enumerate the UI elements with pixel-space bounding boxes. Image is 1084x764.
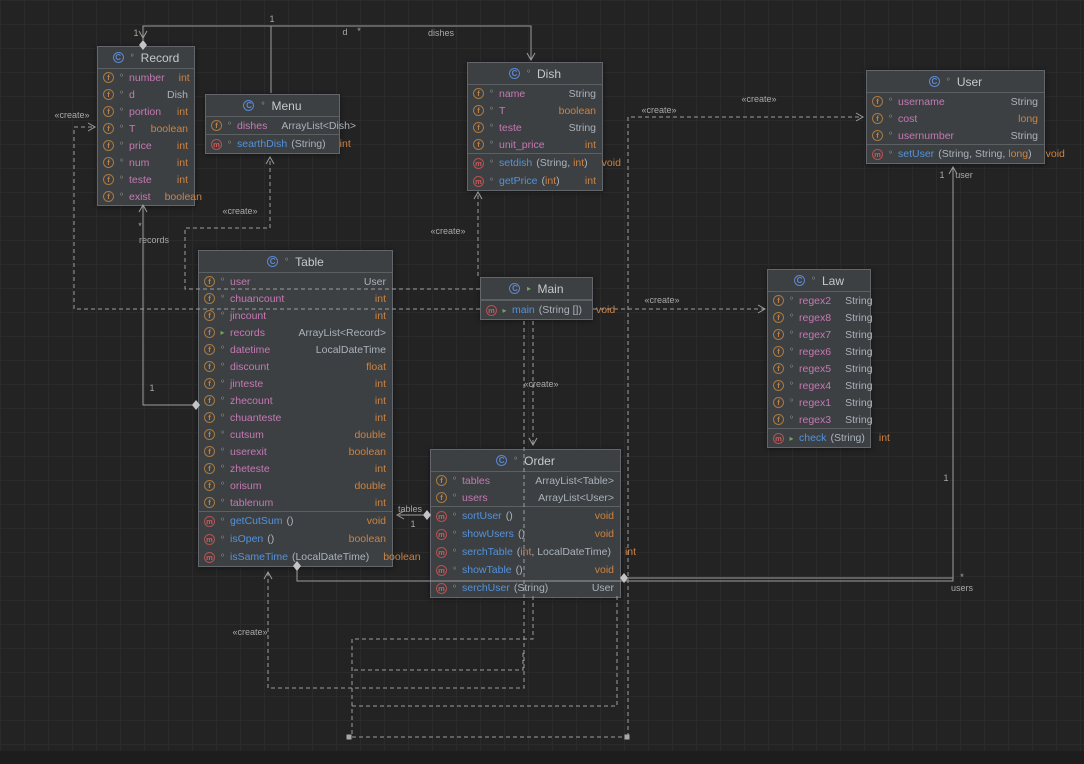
method-row[interactable]: mºsetUser(String, String, long)void	[867, 145, 1044, 163]
visibility-icon: º	[219, 414, 226, 421]
field-name: teste	[499, 122, 522, 134]
field-row[interactable]: fºjintesteint	[199, 375, 392, 392]
class-title: User	[957, 75, 982, 89]
member-type: String	[835, 312, 872, 324]
class-icon: C	[794, 275, 805, 286]
field-row[interactable]: fºTboolean	[98, 120, 194, 137]
class-header-main[interactable]: C▸Main	[481, 278, 592, 300]
method-icon: m	[436, 547, 447, 558]
field-icon: f	[211, 120, 222, 131]
field-row[interactable]: fºjincountint	[199, 307, 392, 324]
class-title: Main	[537, 282, 563, 296]
class-title: Order	[524, 454, 555, 468]
member-type: ArrayList<User>	[528, 492, 614, 504]
member-type: void	[585, 528, 614, 540]
field-row[interactable]: fºtesteString	[468, 119, 602, 136]
field-icon: f	[103, 157, 114, 168]
methods-section: mºgetCutSum()voidmºisOpen()booleanmºisSa…	[199, 511, 392, 566]
method-row[interactable]: mºshowTable()void	[431, 561, 620, 579]
field-row[interactable]: fºuserexitboolean	[199, 443, 392, 460]
method-row[interactable]: mºsetdish(String, int)void	[468, 154, 602, 172]
viewport-edge	[0, 751, 1084, 764]
field-name: number	[129, 72, 165, 84]
member-type: int	[167, 157, 188, 169]
method-icon: m	[872, 149, 883, 160]
field-row[interactable]: fºunit_priceint	[468, 136, 602, 153]
member-type: String []	[542, 304, 578, 316]
member-type: LocalDateTime	[537, 546, 607, 558]
class-title: Table	[295, 255, 324, 269]
member-type: boolean	[141, 123, 188, 135]
class-header-order[interactable]: CºOrder	[431, 450, 620, 472]
method-icon: m	[211, 139, 222, 150]
visibility-icon: º	[219, 482, 226, 489]
member-type: String	[835, 295, 872, 307]
field-icon: f	[773, 414, 784, 425]
fields-section: fºtablesArrayList<Table>fºusersArrayList…	[431, 472, 620, 506]
field-name: num	[129, 157, 149, 169]
member-type: String	[835, 397, 872, 409]
method-row[interactable]: m▸check(String)int	[768, 429, 870, 447]
class-icon: C	[509, 283, 520, 294]
field-icon: f	[773, 397, 784, 408]
method-params: (String)	[830, 432, 864, 444]
visibility-icon: º	[219, 499, 226, 506]
visibility-icon: º	[788, 348, 795, 355]
field-row[interactable]: fºregex8String	[768, 309, 870, 326]
method-params: ()	[516, 564, 523, 576]
field-row[interactable]: fºdishesArrayList<Dish>	[206, 117, 339, 134]
member-type: int	[365, 293, 386, 305]
field-name: unit_price	[499, 139, 545, 151]
field-name: regex8	[799, 312, 831, 324]
method-name: showUsers	[462, 528, 514, 540]
visibility-icon: º	[118, 125, 125, 132]
field-icon: f	[773, 346, 784, 357]
method-params: (LocalDateTime)	[292, 551, 369, 563]
class-icon: C	[243, 100, 254, 111]
member-type: boolean	[339, 533, 386, 545]
field-icon: f	[204, 463, 215, 474]
visibility-icon: º	[788, 365, 795, 372]
field-icon: f	[204, 395, 215, 406]
field-row[interactable]: f▸recordsArrayList<Record>	[199, 324, 392, 341]
method-params: (int, LocalDateTime)	[517, 546, 611, 558]
field-icon: f	[204, 429, 215, 440]
field-name: regex2	[799, 295, 831, 307]
field-name: zheteste	[230, 463, 270, 475]
member-type: void	[585, 510, 614, 522]
field-name: regex5	[799, 363, 831, 375]
visibility-icon: º	[118, 193, 125, 200]
field-icon: f	[473, 105, 484, 116]
field-name: T	[499, 105, 505, 117]
public-marker-icon: ▸	[525, 284, 532, 293]
method-name: getCutSum	[230, 515, 283, 527]
method-params: (String, String, long)	[938, 148, 1031, 160]
methods-section: m▸main(String [])void	[481, 300, 592, 319]
field-row[interactable]: fºtablenumint	[199, 494, 392, 511]
visibility-icon: º	[451, 549, 458, 556]
field-row[interactable]: fºuserUser	[199, 273, 392, 290]
visibility-icon: º	[451, 585, 458, 592]
fields-section: fºnumberintfºdDishfºportionintfºTboolean…	[98, 69, 194, 205]
method-row[interactable]: mºisSameTime(LocalDateTime)boolean	[199, 548, 392, 566]
visibility-icon: º	[512, 457, 519, 464]
member-type: String	[295, 138, 322, 150]
member-type: String	[942, 148, 969, 160]
methods-section: m▸check(String)int	[768, 428, 870, 447]
member-type: String	[835, 380, 872, 392]
field-row[interactable]: fºexistboolean	[98, 188, 194, 205]
visibility-icon: º	[118, 91, 125, 98]
method-row[interactable]: mºgetPrice(int)int	[468, 172, 602, 190]
visibility-icon: º	[788, 314, 795, 321]
method-params: ()	[506, 510, 513, 522]
field-row[interactable]: fºchuancountint	[199, 290, 392, 307]
field-icon: f	[773, 380, 784, 391]
field-row[interactable]: fºregex3String	[768, 411, 870, 428]
method-row[interactable]: m▸main(String [])void	[481, 301, 592, 319]
visibility-icon: º	[810, 277, 817, 284]
class-title: Record	[141, 51, 180, 65]
visibility-icon: º	[488, 124, 495, 131]
member-type: ArrayList<Dish>	[271, 120, 356, 132]
visibility-icon: º	[788, 382, 795, 389]
method-params: (int)	[542, 175, 560, 187]
member-type: String	[559, 88, 596, 100]
field-row[interactable]: fºzhetesteint	[199, 460, 392, 477]
visibility-icon: º	[451, 494, 458, 501]
class-dish[interactable]: CºDishfºnameStringfºTbooleanfºtesteStrin…	[467, 62, 603, 191]
method-row[interactable]: mºisOpen()boolean	[199, 530, 392, 548]
field-name: dishes	[237, 120, 267, 132]
field-icon: f	[473, 139, 484, 150]
field-row[interactable]: fºregex1String	[768, 394, 870, 411]
field-icon: f	[204, 497, 215, 508]
field-icon: f	[204, 446, 215, 457]
visibility-icon: º	[788, 297, 795, 304]
field-name: jincount	[230, 310, 266, 322]
visibility-icon: º	[488, 178, 495, 185]
class-menu[interactable]: CºMenufºdishesArrayList<Dish>mºsearthDis…	[205, 94, 340, 154]
method-icon: m	[436, 583, 447, 594]
visibility-icon: º	[219, 380, 226, 387]
class-header-table[interactable]: CºTable	[199, 251, 392, 273]
member-type: String	[559, 122, 596, 134]
member-type: String	[835, 346, 872, 358]
field-row[interactable]: fºregex2String	[768, 292, 870, 309]
member-type: int	[869, 432, 890, 444]
method-row[interactable]: mºsearthDish(String)int	[206, 135, 339, 153]
class-icon: C	[496, 455, 507, 466]
visibility-icon: º	[525, 70, 532, 77]
visibility-icon: º	[945, 78, 952, 85]
field-row[interactable]: fºzhecountint	[199, 392, 392, 409]
member-type: long	[1008, 113, 1038, 125]
field-row[interactable]: fºcostlong	[867, 110, 1044, 127]
member-type: double	[344, 480, 386, 492]
field-name: discount	[230, 361, 269, 373]
field-name: portion	[129, 106, 161, 118]
field-name: regex7	[799, 329, 831, 341]
field-row[interactable]: fºorisumdouble	[199, 477, 392, 494]
method-name: serchTable	[462, 546, 513, 558]
class-law[interactable]: CºLawfºregex2Stringfºregex8Stringfºregex…	[767, 269, 871, 448]
methods-section: mºsortUser()voidmºshowUsers()voidmºserch…	[431, 506, 620, 597]
field-row[interactable]: fºdatetimeLocalDateTime	[199, 341, 392, 358]
visibility-icon: º	[887, 151, 894, 158]
member-type: User	[354, 276, 386, 288]
method-params: ()	[518, 528, 525, 540]
field-name: username	[898, 96, 945, 108]
field-icon: f	[773, 295, 784, 306]
field-row[interactable]: fºusernumberString	[867, 127, 1044, 144]
member-type: String	[835, 329, 872, 341]
method-name: serchUser	[462, 582, 510, 594]
field-name: chuanteste	[230, 412, 281, 424]
class-header-user[interactable]: CºUser	[867, 71, 1044, 93]
method-icon: m	[204, 534, 215, 545]
visibility-icon: º	[219, 346, 226, 353]
member-type: int	[575, 175, 596, 187]
field-icon: f	[103, 89, 114, 100]
method-row[interactable]: mºgetCutSum()void	[199, 512, 392, 530]
method-icon: m	[773, 433, 784, 444]
field-name: regex1	[799, 397, 831, 409]
method-params: (String, int)	[536, 157, 587, 169]
method-name: isOpen	[230, 533, 263, 545]
member-type: int	[520, 546, 531, 558]
method-name: setUser	[898, 148, 934, 160]
member-type: int	[365, 497, 386, 509]
visibility-icon: º	[788, 416, 795, 423]
field-icon: f	[773, 312, 784, 323]
visibility-icon: º	[219, 448, 226, 455]
field-name: orisum	[230, 480, 262, 492]
member-type: String	[834, 432, 861, 444]
method-icon: m	[436, 565, 447, 576]
class-icon: C	[113, 52, 124, 63]
method-params: ()	[287, 515, 294, 527]
method-params: ()	[267, 533, 274, 545]
visibility-icon: º	[219, 465, 226, 472]
field-name: d	[129, 89, 135, 101]
visibility-icon: º	[118, 142, 125, 149]
visibility-icon: º	[129, 54, 136, 61]
member-type: Dish	[157, 89, 188, 101]
field-row[interactable]: fºTboolean	[468, 102, 602, 119]
method-row[interactable]: mºserchTable(int, LocalDateTime)int	[431, 543, 620, 561]
method-icon: m	[473, 176, 484, 187]
field-name: exist	[129, 191, 151, 203]
field-row[interactable]: fºusersArrayList<User>	[431, 489, 620, 506]
field-icon: f	[103, 106, 114, 117]
field-name: userexit	[230, 446, 267, 458]
member-type: String	[517, 582, 544, 594]
method-params: (String)	[514, 582, 548, 594]
field-icon: f	[103, 123, 114, 134]
field-name: users	[462, 492, 488, 504]
class-table[interactable]: CºTablefºuserUserfºchuancountintfºjincou…	[198, 250, 393, 567]
method-row[interactable]: mºshowUsers()void	[431, 525, 620, 543]
class-title: Menu	[271, 99, 301, 113]
visibility-icon: º	[788, 399, 795, 406]
field-icon: f	[473, 88, 484, 99]
visibility-icon: º	[118, 108, 125, 115]
member-type: int	[573, 157, 584, 169]
field-row[interactable]: fºportionint	[98, 103, 194, 120]
member-type: int	[365, 310, 386, 322]
field-name: usernumber	[898, 130, 954, 142]
method-row[interactable]: mºserchUser(String)User	[431, 579, 620, 597]
class-title: Law	[822, 274, 844, 288]
field-name: zhecount	[230, 395, 273, 407]
class-order[interactable]: CºOrderfºtablesArrayList<Table>fºusersAr…	[430, 449, 621, 598]
member-type: boolean	[339, 446, 386, 458]
field-name: T	[129, 123, 135, 135]
method-params: (String [])	[539, 304, 582, 316]
visibility-icon: º	[488, 107, 495, 114]
class-icon: C	[509, 68, 520, 79]
member-type: boolean	[155, 191, 202, 203]
method-icon: m	[204, 516, 215, 527]
field-name: regex4	[799, 380, 831, 392]
member-type: boolean	[373, 551, 420, 563]
visibility-icon: º	[887, 132, 894, 139]
field-row[interactable]: fºtablesArrayList<Table>	[431, 472, 620, 489]
field-row[interactable]: fºregex4String	[768, 377, 870, 394]
member-type: String	[835, 414, 872, 426]
member-type: void	[1036, 148, 1065, 160]
field-icon: f	[204, 276, 215, 287]
field-icon: f	[103, 191, 114, 202]
visibility-icon: º	[219, 363, 226, 370]
member-type: int	[330, 138, 351, 150]
field-icon: f	[204, 293, 215, 304]
field-row[interactable]: fºusernameString	[867, 93, 1044, 110]
field-row[interactable]: fºdiscountfloat	[199, 358, 392, 375]
fields-section: fºusernameStringfºcostlongfºusernumberSt…	[867, 93, 1044, 144]
field-icon: f	[436, 492, 447, 503]
field-row[interactable]: fºregex7String	[768, 326, 870, 343]
field-name: user	[230, 276, 250, 288]
class-header-menu[interactable]: CºMenu	[206, 95, 339, 117]
class-user[interactable]: CºUserfºusernameStringfºcostlongfºusernu…	[866, 70, 1045, 164]
field-row[interactable]: fºcutsumdouble	[199, 426, 392, 443]
field-name: price	[129, 140, 152, 152]
field-icon: f	[103, 174, 114, 185]
visibility-icon: º	[887, 98, 894, 105]
visibility-icon: º	[451, 513, 458, 520]
member-type: boolean	[549, 105, 596, 117]
field-row[interactable]: fºdDish	[98, 86, 194, 103]
class-header-dish[interactable]: CºDish	[468, 63, 602, 85]
field-icon: f	[204, 361, 215, 372]
method-row[interactable]: mºsortUser()void	[431, 507, 620, 525]
class-record[interactable]: CºRecordfºnumberintfºdDishfºportionintfº…	[97, 46, 195, 206]
visibility-icon: º	[219, 278, 226, 285]
member-type: String	[975, 148, 1002, 160]
class-header-record[interactable]: CºRecord	[98, 47, 194, 69]
visibility-icon: º	[118, 159, 125, 166]
member-type: ArrayList<Record>	[288, 327, 386, 339]
field-name: name	[499, 88, 525, 100]
class-icon: C	[267, 256, 278, 267]
field-icon: f	[773, 363, 784, 374]
member-type: long	[1008, 148, 1028, 160]
class-title: Dish	[537, 67, 561, 81]
visibility-icon: º	[219, 397, 226, 404]
methods-section: mºsetUser(String, String, long)void	[867, 144, 1044, 163]
field-icon: f	[204, 327, 215, 338]
field-icon: f	[103, 140, 114, 151]
field-row[interactable]: fºregex5String	[768, 360, 870, 377]
field-icon: f	[204, 378, 215, 389]
member-type: void	[357, 515, 386, 527]
member-type: String	[1001, 96, 1038, 108]
field-name: jinteste	[230, 378, 263, 390]
method-icon: m	[486, 305, 497, 316]
field-name: cutsum	[230, 429, 264, 441]
method-icon: m	[436, 511, 447, 522]
member-type: int	[615, 546, 636, 558]
member-type: int	[169, 72, 190, 84]
visibility-icon: º	[259, 102, 266, 109]
field-row[interactable]: fºtesteint	[98, 171, 194, 188]
visibility-icon: º	[451, 567, 458, 574]
visibility-icon: º	[226, 122, 233, 129]
member-type: User	[582, 582, 614, 594]
method-name: check	[799, 432, 826, 444]
member-type: ArrayList<Table>	[525, 475, 614, 487]
class-main[interactable]: C▸Mainm▸main(String [])void	[480, 277, 593, 320]
field-icon: f	[204, 310, 215, 321]
member-type: int	[365, 395, 386, 407]
field-name: tables	[462, 475, 490, 487]
visibility-icon: º	[451, 477, 458, 484]
visibility-icon: º	[488, 141, 495, 148]
member-type: int	[167, 174, 188, 186]
member-type: void	[592, 157, 621, 169]
field-name: datetime	[230, 344, 270, 356]
field-row[interactable]: fºnumint	[98, 154, 194, 171]
public-marker-icon: ▸	[219, 328, 226, 337]
visibility-icon: º	[219, 431, 226, 438]
methods-section: mºsetdish(String, int)voidmºgetPrice(int…	[468, 153, 602, 190]
fields-section: fºdishesArrayList<Dish>	[206, 117, 339, 134]
public-marker-icon: ▸	[501, 306, 508, 315]
class-header-law[interactable]: CºLaw	[768, 270, 870, 292]
field-row[interactable]: fºchuantesteint	[199, 409, 392, 426]
field-name: chuancount	[230, 293, 284, 305]
method-icon: m	[473, 158, 484, 169]
member-type: int	[365, 412, 386, 424]
method-name: isSameTime	[230, 551, 288, 563]
field-row[interactable]: fºpriceint	[98, 137, 194, 154]
field-row[interactable]: fºregex6String	[768, 343, 870, 360]
visibility-icon: º	[118, 74, 125, 81]
field-icon: f	[204, 480, 215, 491]
member-type: int	[545, 175, 556, 187]
field-name: cost	[898, 113, 917, 125]
method-icon: m	[204, 552, 215, 563]
member-type: int	[365, 378, 386, 390]
member-type: float	[356, 361, 386, 373]
field-row[interactable]: fºnameString	[468, 85, 602, 102]
diagram-canvas[interactable]: CºRecordfºnumberintfºdDishfºportionintfº…	[0, 0, 1084, 764]
field-row[interactable]: fºnumberint	[98, 69, 194, 86]
